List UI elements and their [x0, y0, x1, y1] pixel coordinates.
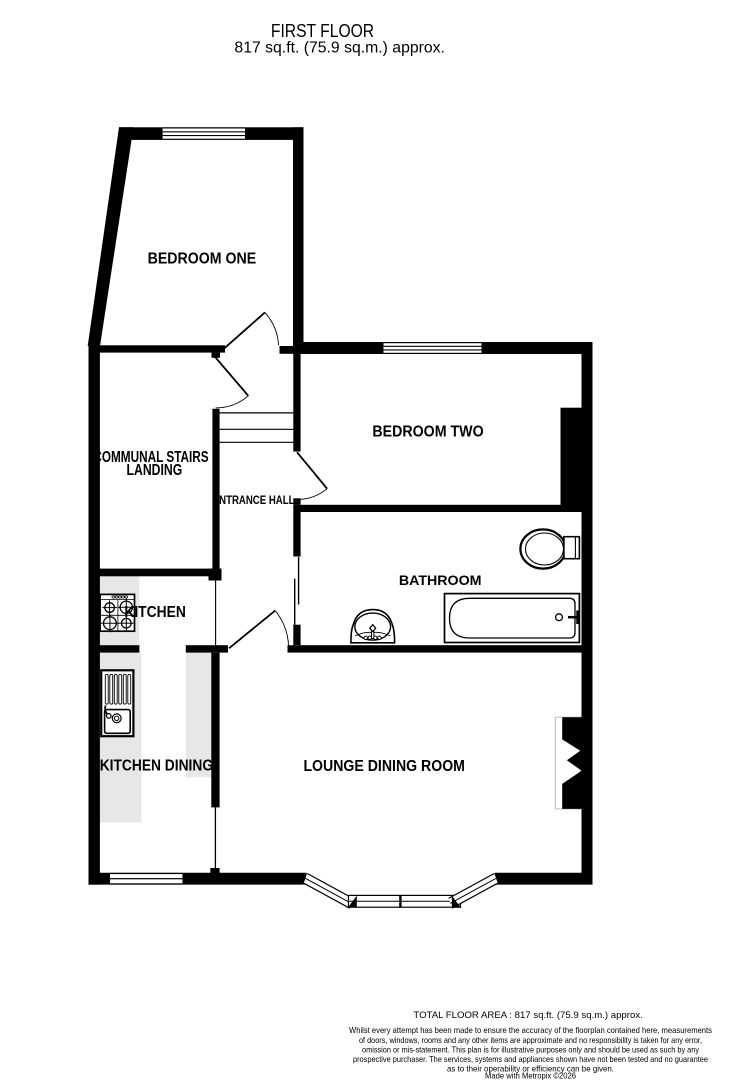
svg-text:KITCHEN: KITCHEN [124, 604, 186, 621]
svg-text:BEDROOM ONE: BEDROOM ONE [148, 251, 257, 268]
svg-text:817 sq.ft. (75.9 sq.m.) approx: 817 sq.ft. (75.9 sq.m.) approx. [234, 40, 445, 57]
svg-text:Whilst every attempt has been: Whilst every attempt has been made to en… [349, 1026, 712, 1035]
svg-text:BATHROOM: BATHROOM [399, 572, 482, 588]
svg-text:Made with Metropix ©2026: Made with Metropix ©2026 [485, 1072, 576, 1080]
svg-text:LANDING: LANDING [127, 462, 183, 479]
svg-text:of doors, windows, rooms and a: of doors, windows, rooms and any other i… [359, 1036, 702, 1045]
svg-text:TOTAL FLOOR AREA : 817 sq.ft.: TOTAL FLOOR AREA : 817 sq.ft. (75.9 sq.m… [413, 1010, 642, 1021]
svg-text:FIRST FLOOR: FIRST FLOOR [271, 21, 374, 41]
svg-text:BEDROOM TWO: BEDROOM TWO [372, 423, 483, 440]
svg-text:LOUNGE DINING ROOM: LOUNGE DINING ROOM [303, 758, 465, 775]
svg-text:ENTRANCE HALL: ENTRANCE HALL [213, 493, 295, 507]
svg-text:prospective purchaser. The ser: prospective purchaser. The services, sys… [353, 1055, 708, 1064]
svg-text:omission or mis-statement. Thi: omission or mis-statement. This plan is … [362, 1045, 700, 1054]
svg-text:KITCHEN DINING: KITCHEN DINING [100, 757, 213, 774]
